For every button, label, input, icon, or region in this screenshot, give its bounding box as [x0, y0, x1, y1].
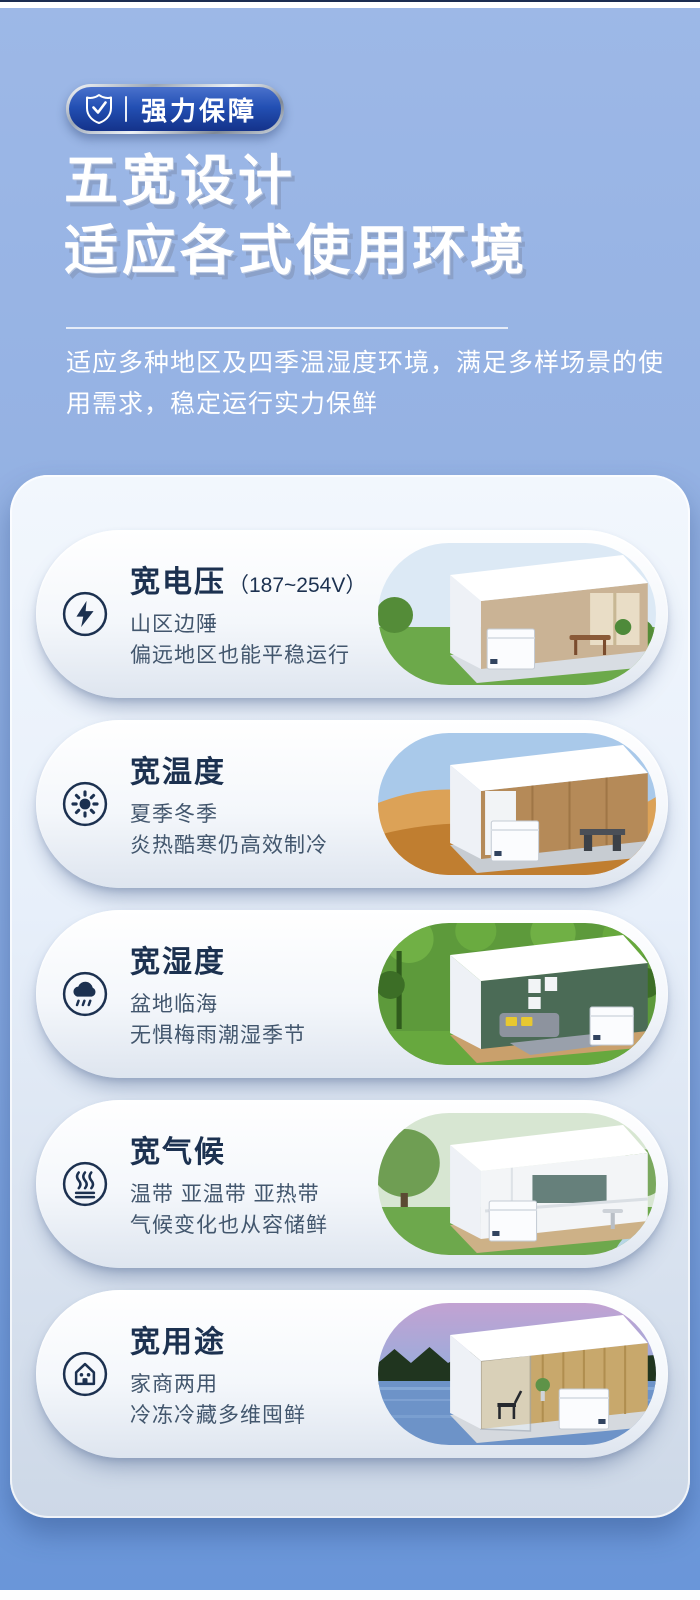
feature-card-temperature-text: 宽温度 夏季冬季 炎热酷寒仍高效制冷: [130, 747, 328, 861]
feature-line1: 温带 亚温带 亚热带: [130, 1179, 328, 1210]
sun-icon: [62, 781, 108, 827]
feature-title: 宽用途: [130, 1317, 226, 1361]
scene-image-garden-kitchen: [378, 1113, 656, 1255]
lightning-icon: [62, 591, 108, 637]
scene-image-lakeside-room: [378, 1303, 656, 1445]
page-subtitle-line1: 适应多种地区及四季温湿度环境，满足多样场景的使: [66, 343, 664, 384]
feature-line1: 夏季冬季: [130, 799, 328, 830]
feature-title: 宽气候: [130, 1127, 226, 1171]
feature-card-humidity-text: 宽湿度 盆地临海 无惧梅雨潮湿季节: [130, 937, 306, 1051]
feature-card-climate: 宽气候 温带 亚温带 亚热带 气候变化也从容储鲜: [36, 1100, 668, 1268]
guarantee-badge-inner: 强力保障: [69, 87, 281, 131]
scene-image-rainforest-living-room: [378, 923, 656, 1065]
guarantee-badge: 强力保障: [66, 84, 284, 134]
page-subtitle: 适应多种地区及四季温湿度环境，满足多样场景的使 用需求，稳定运行实力保鲜: [66, 343, 664, 425]
feature-line2: 无惧梅雨潮湿季节: [130, 1020, 306, 1051]
page-title: 五宽设计 适应各式使用环境: [64, 146, 528, 286]
feature-line2: 冷冻冷藏多维囤鲜: [130, 1400, 306, 1431]
page-title-line1: 五宽设计: [64, 146, 528, 216]
badge-label: 强力保障: [141, 91, 257, 128]
page-subtitle-line2: 用需求，稳定运行实力保鲜: [66, 384, 664, 425]
badge-divider: [125, 96, 127, 122]
features-panel: 宽电压 （187~254V） 山区边陲 偏远地区也能平稳运行: [10, 475, 690, 1518]
house-icon: [62, 1351, 108, 1397]
feature-title-suffix: （187~254V）: [228, 569, 366, 599]
top-white-strip: [0, 2, 700, 8]
feature-line2: 炎热酷寒仍高效制冷: [130, 830, 328, 861]
feature-line1: 家商两用: [130, 1369, 306, 1400]
feature-line2: 偏远地区也能平稳运行: [130, 640, 366, 671]
page-title-line2: 适应各式使用环境: [64, 216, 528, 286]
scene-image-grass-living-room: [378, 543, 656, 685]
feature-line1: 山区边陲: [130, 609, 366, 640]
feature-title: 宽湿度: [130, 937, 226, 981]
feature-card-voltage: 宽电压 （187~254V） 山区边陲 偏远地区也能平稳运行: [36, 530, 668, 698]
shield-check-icon: [83, 92, 115, 126]
feature-card-usage: 宽用途 家商两用 冷冻冷藏多维囤鲜: [36, 1290, 668, 1458]
feature-card-voltage-text: 宽电压 （187~254V） 山区边陲 偏远地区也能平稳运行: [130, 557, 366, 671]
bottom-white-strip: [0, 1590, 700, 1600]
feature-card-usage-text: 宽用途 家商两用 冷冻冷藏多维囤鲜: [130, 1317, 306, 1431]
scene-image-desert-kitchen: [378, 733, 656, 875]
feature-card-humidity: 宽湿度 盆地临海 无惧梅雨潮湿季节: [36, 910, 668, 1078]
promo-section: 强力保障 五宽设计 适应各式使用环境 适应多种地区及四季温湿度环境，满足多样场景…: [0, 0, 700, 1600]
feature-title: 宽电压: [130, 557, 226, 601]
feature-line1: 盆地临海: [130, 989, 306, 1020]
feature-card-climate-text: 宽气候 温带 亚温带 亚热带 气候变化也从容储鲜: [130, 1127, 328, 1241]
feature-line2: 气候变化也从容储鲜: [130, 1210, 328, 1241]
feature-title: 宽温度: [130, 747, 226, 791]
rain-cloud-icon: [62, 971, 108, 1017]
title-divider: [66, 327, 508, 329]
feature-card-temperature: 宽温度 夏季冬季 炎热酷寒仍高效制冷: [36, 720, 668, 888]
heat-waves-icon: [62, 1161, 108, 1207]
